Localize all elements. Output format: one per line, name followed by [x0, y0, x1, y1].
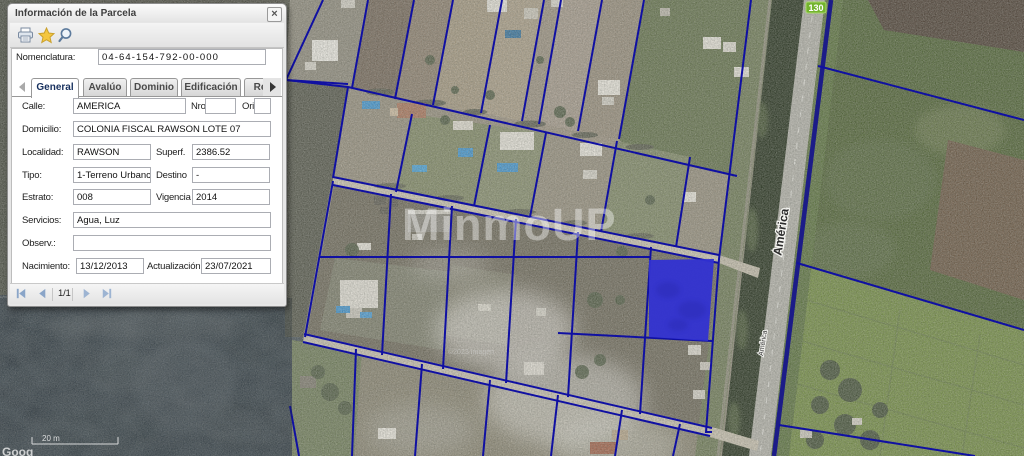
svg-text:©2023 Imagen: ©2023 Imagen: [448, 348, 494, 356]
svg-text:130: 130: [808, 3, 823, 13]
svg-text:20 m: 20 m: [42, 434, 60, 443]
svg-text:MinmoUP: MinmoUP: [402, 199, 617, 250]
svg-text:Goog: Goog: [2, 445, 33, 456]
